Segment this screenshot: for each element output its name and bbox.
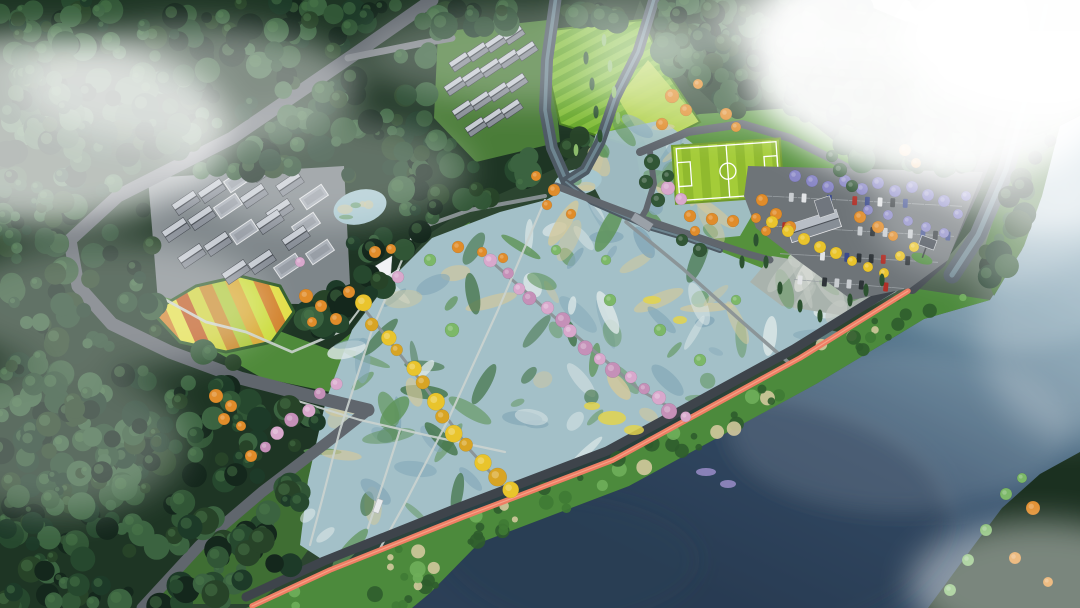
parked-car — [881, 255, 886, 264]
site-plan-canvas — [0, 0, 1080, 608]
parked-car — [797, 275, 803, 284]
parked-car — [857, 226, 862, 235]
parked-car — [789, 193, 794, 202]
parked-car — [846, 279, 852, 288]
aerial-masterplan-rendering — [0, 0, 1080, 608]
parked-car — [865, 197, 870, 206]
parked-car — [834, 278, 840, 287]
parked-car — [859, 280, 865, 289]
parked-car — [801, 193, 806, 202]
parked-car — [852, 196, 857, 205]
parked-car — [822, 277, 828, 286]
